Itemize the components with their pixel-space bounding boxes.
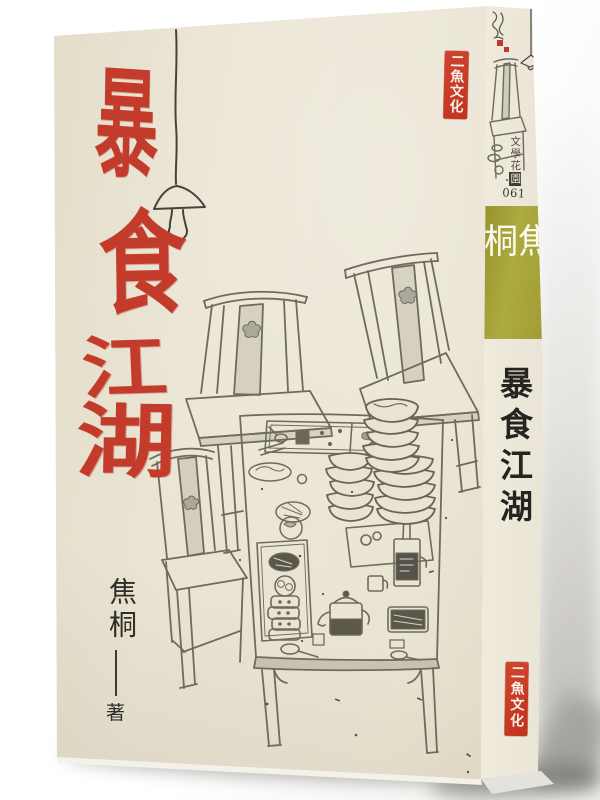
bowl-stack-center bbox=[326, 453, 374, 521]
side-dishes bbox=[388, 607, 428, 660]
spine-author-name: 焦桐 bbox=[481, 206, 549, 339]
spine-lamp-icon bbox=[521, 0, 540, 70]
publisher-seal-stamp: 二魚文化 bbox=[443, 51, 469, 120]
series-name-boxed-char: 園 bbox=[509, 172, 521, 186]
cover-author-name: 焦桐 bbox=[101, 577, 141, 643]
bowl-stack-top bbox=[363, 399, 419, 472]
teapot bbox=[313, 591, 369, 645]
series-number: 061 bbox=[487, 185, 542, 202]
series-label: 文學花園 bbox=[487, 136, 543, 190]
cover-title-char-1: 暴 bbox=[94, 64, 159, 187]
cover-title-char-2: 食 bbox=[98, 208, 187, 322]
publisher-seal-text: 二魚文化 bbox=[448, 51, 464, 114]
cover-title-char-4: 湖 bbox=[75, 400, 177, 482]
cover-author-role: 著 bbox=[106, 698, 125, 725]
wine-bottle-tray bbox=[346, 514, 433, 591]
artist-signature bbox=[493, 12, 509, 52]
spine-author-block: 焦桐 bbox=[484, 206, 545, 339]
spine-publisher-seal: 二魚文化 bbox=[504, 662, 528, 736]
book-product-photo: 暴 食 江 湖 焦桐 著 二魚文化 bbox=[0, 0, 600, 800]
spine-title: 暴食江湖 bbox=[484, 366, 544, 534]
spine-publisher-seal-text: 二魚文化 bbox=[509, 662, 524, 729]
spine-title-text: 暴食江湖 bbox=[498, 366, 531, 530]
series-name: 文學花 bbox=[509, 136, 521, 172]
food-plates bbox=[249, 443, 310, 539]
dish-board bbox=[257, 540, 318, 657]
author-divider-line bbox=[115, 650, 117, 696]
wall-shadow bbox=[538, 90, 600, 790]
cups-stack bbox=[268, 596, 300, 640]
